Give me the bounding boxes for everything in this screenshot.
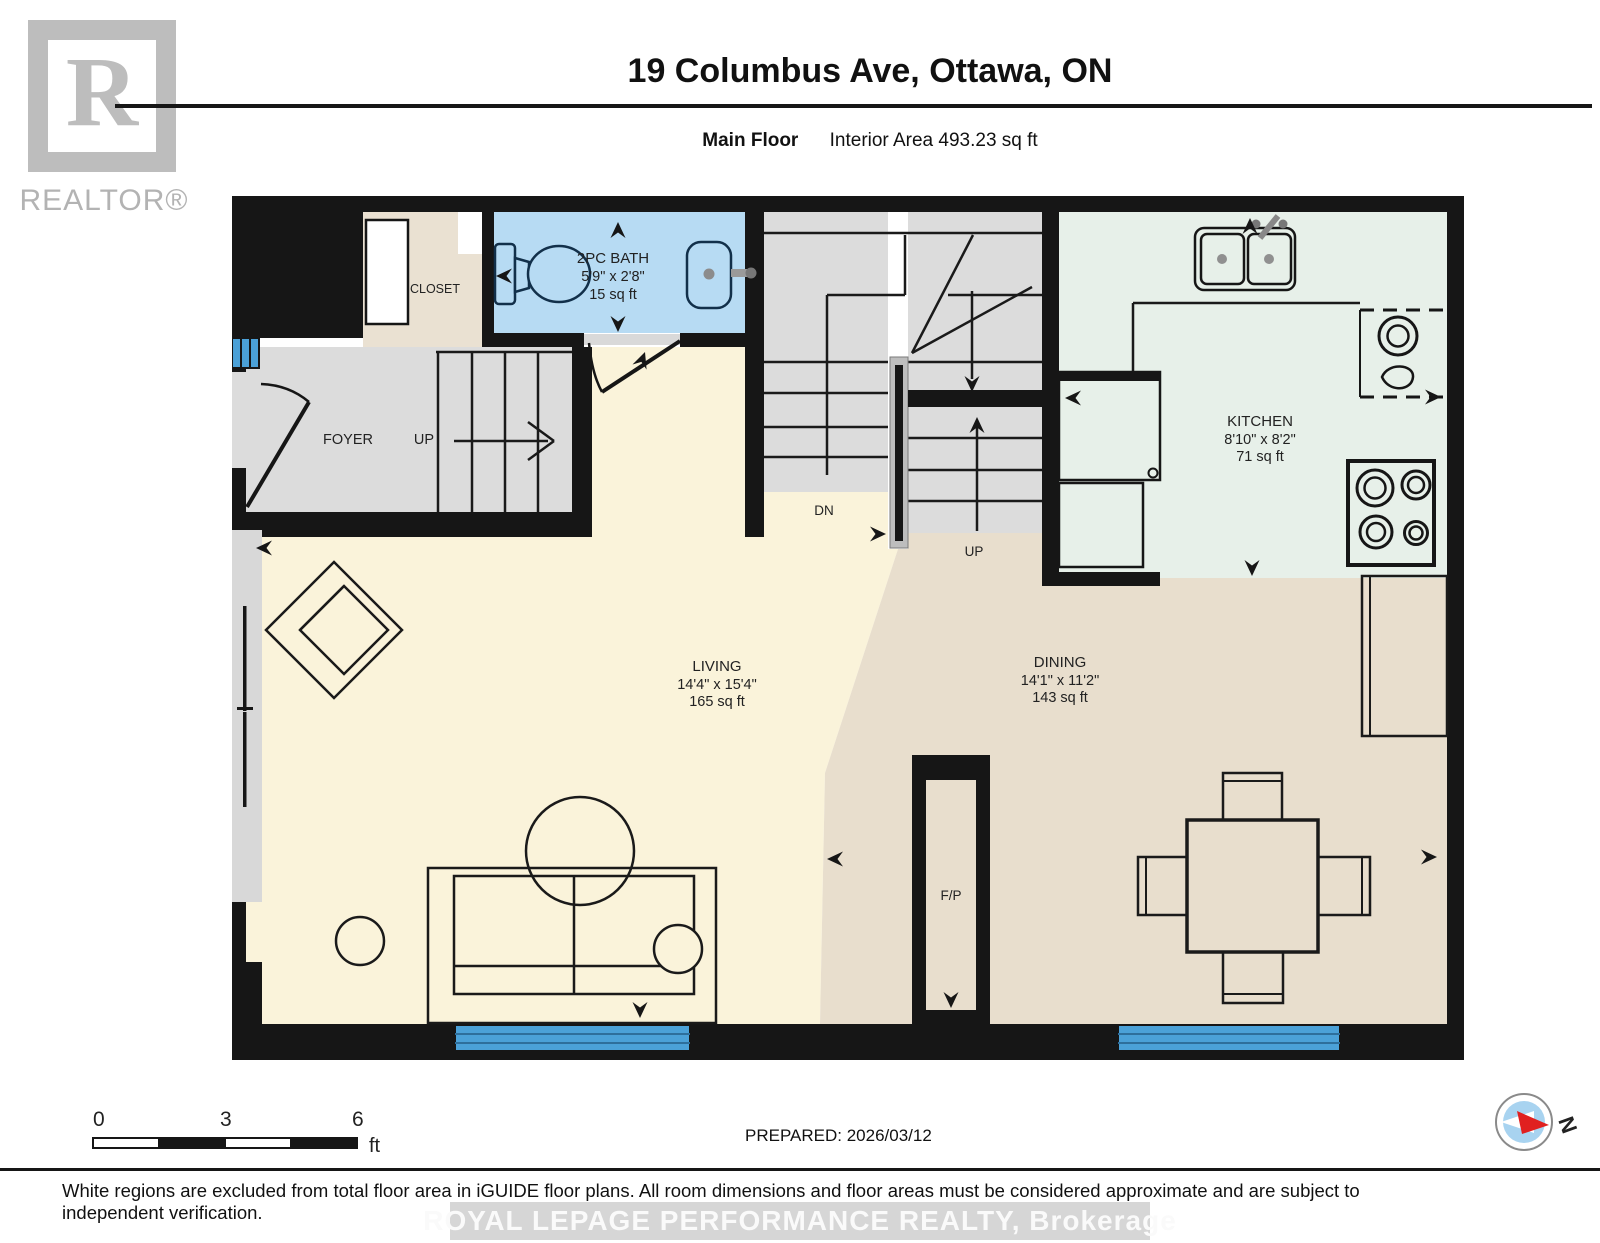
room-living-area: 165 sq ft [689,694,745,710]
scale-unit: ft [369,1135,381,1157]
floor-plan: 2PC BATH 5'9" x 2'8" 15 sq ft CLOSET FOY… [232,196,1464,1060]
stair-railing-core [895,365,903,541]
fireplace-label: F/P [940,888,961,903]
side-table-left-icon [336,917,384,965]
toilet-icon [495,244,590,304]
room-bath-dims: 5'9" x 2'8" [581,269,644,285]
interior-area-label: Interior Area 493.23 sq ft [830,130,1038,151]
closet-symbol [366,220,408,324]
scale-tick-3: 3 [220,1108,232,1131]
stair-dn-label: DN [814,503,834,518]
room-dining-dims: 14'1" x 11'2" [1021,673,1099,689]
compass-icon: N [1480,1080,1600,1170]
stair-up-foyer-label: UP [414,432,434,448]
room-kitchen-area: 71 sq ft [1236,449,1284,465]
kitchen-cabinet [1059,483,1143,567]
stair-block-left [763,212,888,492]
room-kitchen-label: KITCHEN [1227,413,1293,430]
foyer-window [232,338,259,368]
stair-block-right [908,212,1042,390]
realtor-logo: R [28,20,176,172]
room-living-dims: 14'4" x 15'4" [677,677,757,693]
prepared-date: PREPARED: 2026/03/12 [745,1126,932,1146]
room-living-label: LIVING [692,658,741,675]
floor-subtitle: Main Floor Interior Area 493.23 sq ft [270,130,1470,152]
room-dining-label: DINING [1034,654,1087,671]
room-dining-area: 143 sq ft [1032,690,1088,706]
appliance-icon [1059,372,1160,480]
realtor-logo-text: REALTOR® [4,184,204,218]
round-table-icon [526,797,634,905]
scale-tick-6: 6 [352,1108,364,1131]
room-bath-label: 2PC BATH [577,250,649,267]
scale-tick-0: 0 [93,1108,105,1131]
title-rule [115,104,1592,108]
page-title: 19 Columbus Ave, Ottawa, ON [270,52,1470,91]
kitchen-sink-icon [1195,216,1295,290]
living-window [455,1025,690,1051]
brokerage-watermark: ROYAL LEPAGE PERFORMANCE REALTY, Brokera… [450,1202,1150,1240]
front-door-opening [232,372,246,468]
bay-window [232,530,262,902]
room-kitchen-dims: 8'10" x 8'2" [1224,432,1295,448]
stair-up-label: UP [965,544,984,559]
dining-window [1118,1025,1340,1051]
stove-icon [1348,461,1434,565]
room-closet-label: CLOSET [410,282,460,296]
side-table-right-icon [654,925,702,973]
excluded-notch [458,212,482,254]
room-bath-area: 15 sq ft [589,287,637,303]
floor-label: Main Floor [702,130,798,151]
realtor-logo-letter: R [66,42,138,142]
compass-north-label: N [1553,1113,1582,1136]
footer-divider [0,1168,1600,1171]
bath-door-threshold [584,334,680,345]
scale-bar: 0 3 6 ft [85,1098,415,1162]
room-foyer-label: FOYER [323,432,373,448]
